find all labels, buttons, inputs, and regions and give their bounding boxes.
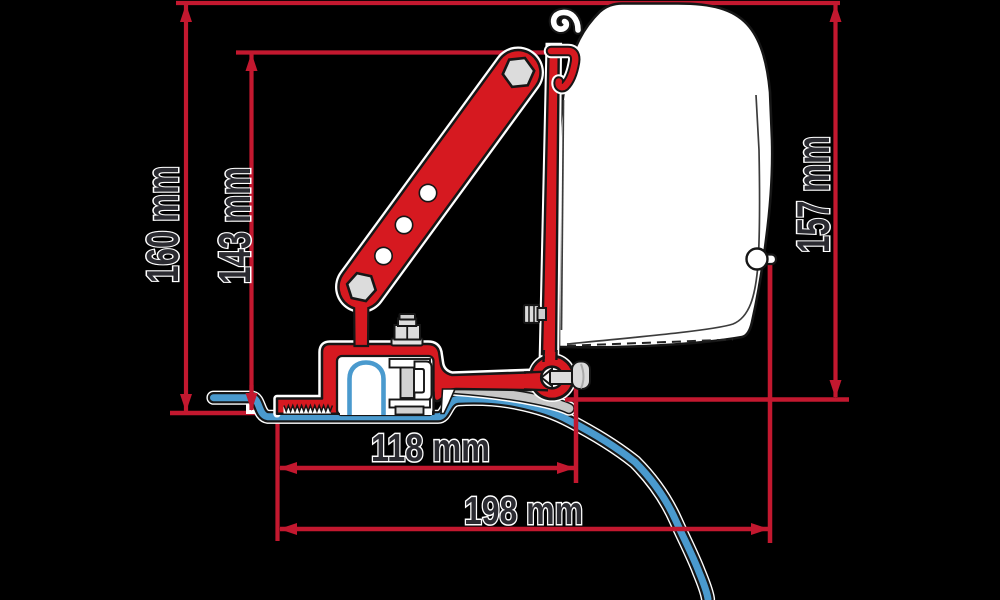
svg-text:157 mm: 157 mm — [787, 136, 839, 253]
svg-text:198 mm: 198 mm — [464, 490, 583, 533]
svg-text:160 mm: 160 mm — [137, 166, 188, 283]
svg-text:143 mm: 143 mm — [209, 167, 260, 284]
svg-text:118 mm: 118 mm — [371, 427, 490, 470]
